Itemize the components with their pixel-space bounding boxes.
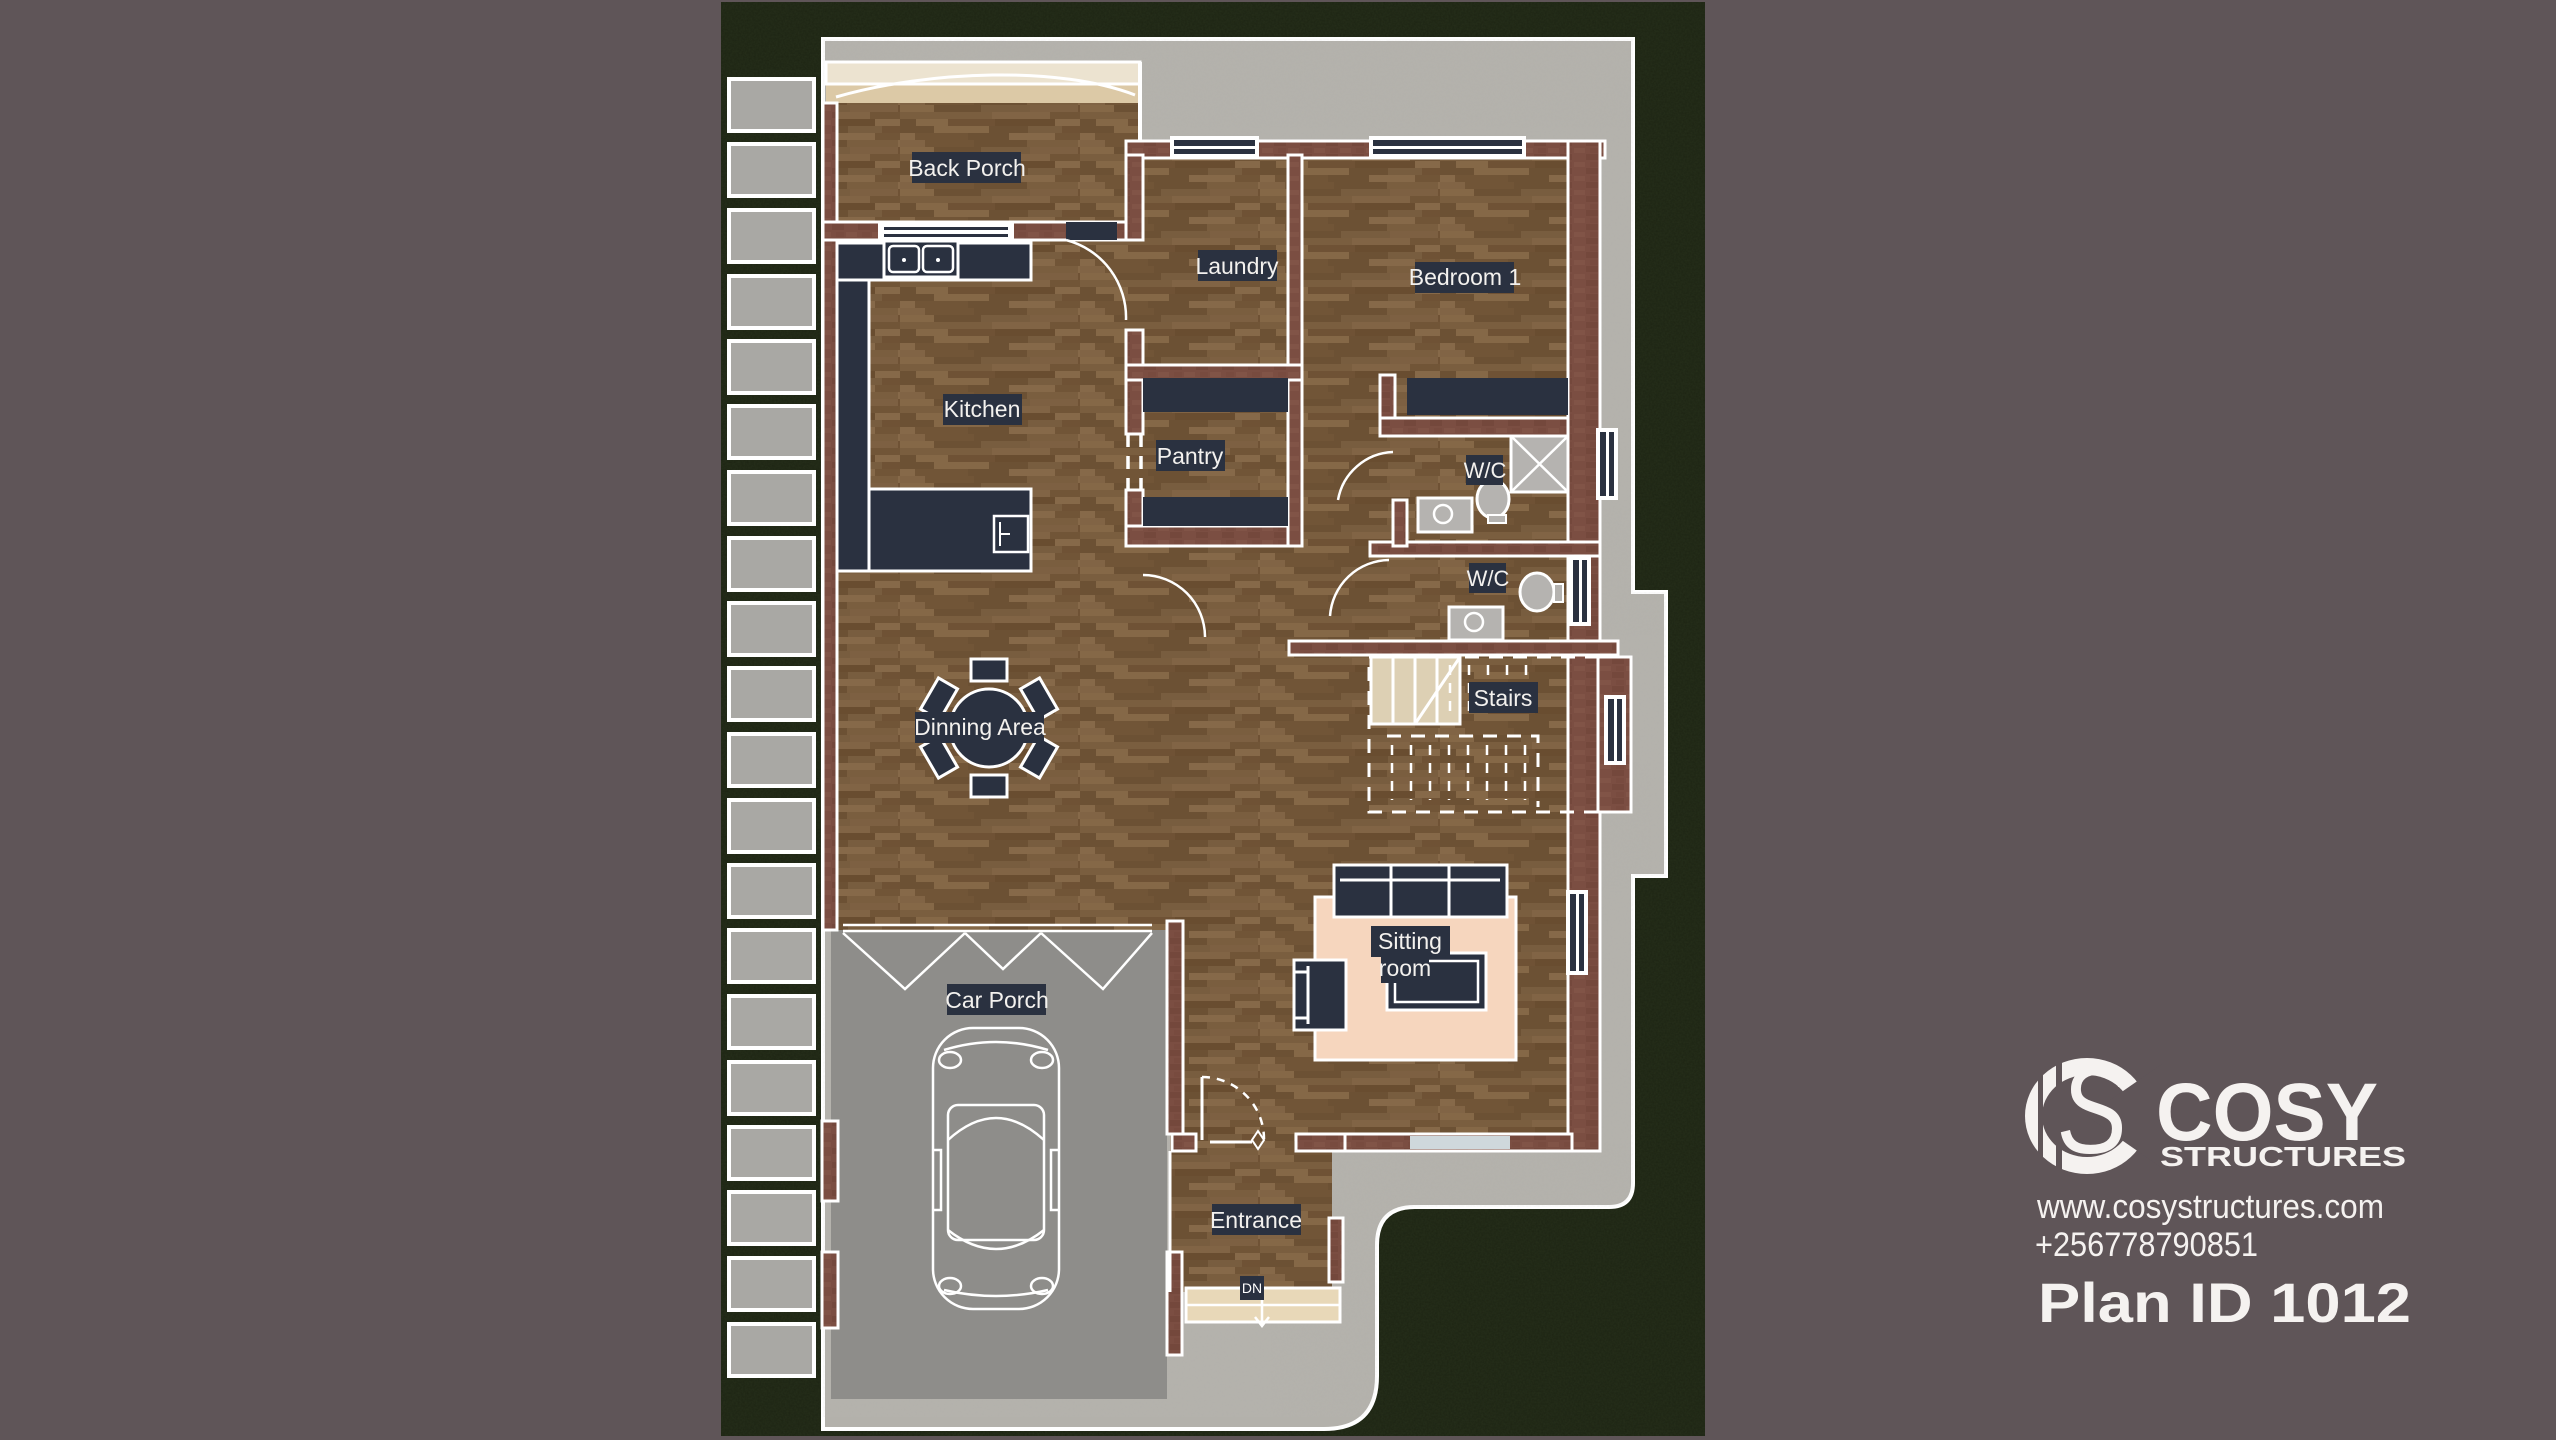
svg-text:Stairs: Stairs <box>1474 685 1533 711</box>
svg-text:Kitchen: Kitchen <box>944 396 1021 422</box>
svg-text:S: S <box>2058 1042 2128 1180</box>
svg-text:Back Porch: Back Porch <box>908 155 1026 181</box>
svg-text:Sitting: Sitting <box>1378 928 1442 954</box>
svg-text:Laundry: Laundry <box>1195 253 1279 279</box>
svg-text:DN: DN <box>1242 1280 1262 1296</box>
svg-text:Dinning Area: Dinning Area <box>914 714 1046 740</box>
svg-text:Car Porch: Car Porch <box>945 987 1049 1013</box>
svg-text:Plan ID 1012: Plan ID 1012 <box>2038 1271 2411 1334</box>
svg-text:room: room <box>1379 955 1431 981</box>
svg-text:www.cosystructures.com: www.cosystructures.com <box>2036 1188 2384 1226</box>
svg-text:Pantry: Pantry <box>1157 443 1224 469</box>
svg-text:W/C: W/C <box>1464 458 1507 483</box>
svg-text:Entrance: Entrance <box>1210 1207 1302 1233</box>
svg-text:W/C: W/C <box>1467 566 1510 591</box>
svg-text:+256778790851: +256778790851 <box>2035 1226 2258 1264</box>
svg-text:Bedroom 1: Bedroom 1 <box>1409 264 1522 290</box>
svg-text:STRUCTURES: STRUCTURES <box>2160 1141 2406 1172</box>
